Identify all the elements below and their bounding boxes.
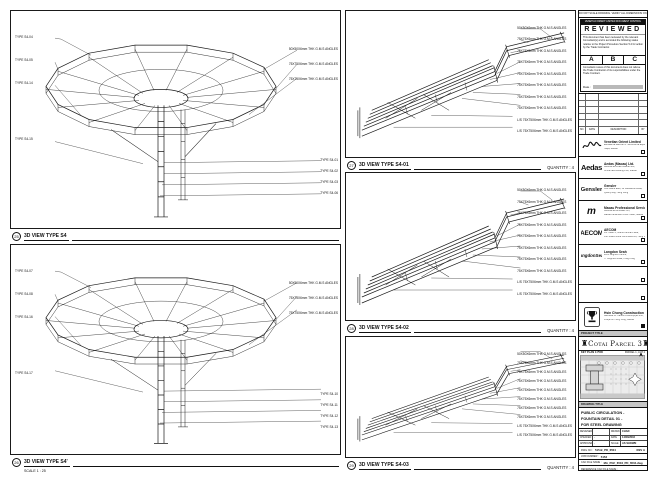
view-panel-s4-01: 50X50X6mm THK G.M.S ANGLES75X75X6mm THK …: [345, 10, 576, 158]
member-labels: 50X50X6mm THK G.M.S ANGLES75X75X6mm THK …: [517, 188, 572, 296]
scale-label: SCALE: [610, 440, 621, 446]
member-size-label: 75X75X6mm THK G.M.S ANGLES: [517, 49, 566, 53]
member-labels-right: 50X50X6mm THK G.M.S ANGLES75X75X6mm THK …: [289, 47, 338, 81]
quantity-label: QUANTITY : 4: [544, 165, 574, 170]
contractor-trophy-logo: [581, 307, 602, 327]
type-label: TYPE S4-10: [320, 392, 338, 396]
member-size-label: 75X75X6mm THK G.M.S ANGLES: [517, 72, 566, 76]
member-size-label: 75X75X6mm THK G.M.S ANGLES: [517, 83, 566, 87]
mps-logo: m: [581, 207, 602, 217]
member-size-label: L/S 75X75X6mm THK G.M.S ANGLES: [517, 280, 572, 284]
langdon-seah-logo: LangdonSeah: [581, 253, 602, 258]
company-address: China Law Building 21/F, Macau: [604, 170, 645, 173]
project-title: Cotai Parcel 3: [588, 340, 642, 348]
key-plan: KEY PLAN 1:7500 PARCEL 1, LOT 2: [579, 351, 647, 402]
company-row-venetian: Venetian Orient Limited Estrada da Baía …: [579, 135, 647, 157]
member-size-label: 75X75X6mm THK G.M.S ANGLES: [517, 406, 566, 410]
member-labels-left: TYPE S4-07TYPE S4-08TYPE S4-16TYPE S4-17: [15, 269, 33, 375]
member-size-label: 75X75X6mm THK G.M.S ANGLES: [517, 269, 566, 273]
company-row-mps: m Macau Professional Services Ltd. Aveni…: [579, 201, 647, 223]
member-size-label: L/S 75X75X6mm THK G.M.S ANGLES: [517, 118, 572, 122]
gensler-logo: Gensler: [581, 187, 602, 193]
member-labels: 50X50X6mm THK G.M.S ANGLES75X75X6mm THK …: [517, 352, 572, 437]
type-label: TYPE S4-17: [15, 371, 33, 375]
panel-title-row: 27 3D VIEW TYPE S4-01 QUANTITY : 4: [347, 159, 574, 170]
status-options: ABC: [581, 55, 645, 65]
member-size-label: 75X75X6mm THK G.M.S ANGLES: [289, 296, 338, 300]
aedas-logo: Aedas: [581, 163, 602, 172]
member-labels-left: TYPE S4-04TYPE S4-05TYPE S4-14TYPE S4-15: [15, 35, 33, 141]
type-label: TYPE S4-14: [15, 81, 33, 85]
scale-note: SCALE 1 : 25: [24, 469, 46, 473]
cad-file-value: MA_PGF_6504_PD_6504.dwg: [604, 461, 643, 465]
scale-value: AS SHOWN: [621, 440, 647, 446]
title-rule: [73, 466, 339, 467]
company-address: Macau Landmark Office Tower, Macau: [604, 214, 645, 217]
type-label: TYPE S4-07: [15, 269, 33, 273]
member-size-label: 75X75X6mm THK G.M.S ANGLES: [517, 234, 566, 238]
type-label: TYPE S4-08: [15, 292, 33, 296]
view-title: 3D VIEW TYPE S4-02: [359, 325, 411, 333]
type-label: TYPE S4-11: [320, 403, 337, 407]
member-size-label: 50X50X6mm THK G.M.S ANGLES: [517, 352, 566, 356]
revision-value: REV A: [637, 448, 645, 452]
status-option: B: [602, 56, 624, 64]
member-size-label: 75X75X6mm THK G.M.S ANGLES: [517, 200, 566, 204]
drawing-title: PUBLIC CIRCULATION -FOUNTAIN DETAIL 01 -…: [579, 408, 647, 429]
type-label: TYPE S4-06: [320, 191, 338, 195]
member-size-label: 75X75X6mm THK G.M.S ANGLES: [517, 211, 566, 215]
rev-col-by: BY: [639, 127, 647, 134]
type-label: TYPE S4-12: [320, 414, 338, 418]
member-size-label: L/S 75X75X6mm THK G.M.S ANGLES: [517, 424, 572, 428]
company-row-gensler: Gensler Gensler One Island East, 18 West…: [579, 179, 647, 201]
view-title: 3D VIEW TYPE S4: [24, 233, 69, 241]
radial-structure-drawing: [11, 11, 340, 228]
job-number-label: JOB NUMBER :: [581, 455, 599, 458]
title-rule: [414, 332, 541, 333]
cad-file-label: CAD FILE NAME :: [581, 461, 602, 464]
date-fill-line: [593, 85, 643, 89]
member-size-label: 75X75X6mm THK G.M.S ANGLES: [289, 311, 338, 315]
review-checkbox-checked: [641, 324, 645, 328]
view-panel-s4-03: 50X50X6mm THK G.M.S ANGLES75X75X6mm THK …: [345, 336, 576, 458]
view-title: 3D VIEW TYPE S4-01: [359, 162, 411, 170]
approved-value: -: [593, 440, 610, 446]
member-size-label: 75X75X6mm THK G.M.S ANGLES: [517, 223, 566, 227]
key-plan-label: KEY PLAN 1:7500: [581, 351, 603, 354]
banner-finial-icon: ♜: [642, 340, 647, 348]
member-size-label: L/S 75X75X6mm THK G.M.S ANGLES: [517, 433, 572, 437]
type-label: TYPE S4-15: [15, 137, 33, 141]
member-size-label: 50X50X6mm THK G.M.S ANGLES: [517, 26, 566, 30]
view-panel-s4-02: 50X50X6mm THK G.M.S ANGLES75X75X6mm THK …: [345, 172, 576, 321]
view-panel-type-s4-prime: TYPE S4-07TYPE S4-08TYPE S4-16TYPE S4-17…: [10, 244, 341, 455]
member-size-label: 75X75X6mm THK G.M.S ANGLES: [517, 257, 566, 261]
drawing-title-label: DRAWING TITLE: [579, 402, 647, 407]
member-labels-right: 50X50X6mm THK G.M.S ANGLES75X75X6mm THK …: [289, 281, 338, 315]
stamp-paragraph-2: Consultant review of this document does …: [581, 65, 645, 85]
stamp-paragraph-1: This document has been reviewed by the r…: [581, 35, 645, 55]
disclaimer-bar: DO NOT SCALE DRAWING. VERIFY ALL DIMENSI…: [579, 11, 647, 18]
job-number-value: 5153: [601, 455, 607, 459]
company-row-langdon-seah: LangdonSeah Langdon Seah 2101 Leighton C…: [579, 245, 647, 267]
review-checkbox: [641, 260, 645, 264]
revision-table: NO. DATE DESCRIPTION BY: [579, 94, 647, 135]
rev-col-description: DESCRIPTION: [599, 127, 639, 134]
drawing-title-line: FOR STEEL DRAWING: [581, 422, 645, 428]
detail-number-badge: 26: [12, 458, 21, 467]
review-checkbox: [641, 194, 645, 198]
banner-finial-icon: ♜: [581, 340, 588, 348]
type-label: TYPE S4-13: [320, 425, 338, 429]
title-rule: [414, 169, 541, 170]
detail-number-badge: 27: [347, 161, 356, 170]
member-size-label: 75X75X6mm THK G.M.S ANGLES: [517, 379, 566, 383]
contractor-row: Hsin Chong Construction (Macau) Co. Ltd.…: [579, 303, 647, 331]
type-label: TYPE S4-02: [320, 169, 338, 173]
type-label: TYPE S4-03: [320, 180, 338, 184]
member-size-label: 75X75X6mm THK G.M.S ANGLES: [289, 62, 338, 66]
project-title-banner: ♜ Cotai Parcel 3 ♜: [579, 337, 647, 351]
dwg-no-label: DWG NO :: [581, 449, 593, 452]
rev-col-no: NO.: [579, 127, 586, 134]
radial-structure-drawing: [11, 245, 340, 454]
member-size-label: 75X75X6mm THK G.M.S ANGLES: [517, 60, 566, 64]
panel-title-row: 28 3D VIEW TYPE S4-02 QUANTITY : 4: [347, 322, 574, 333]
contractor-address: Praça Kin Heng Long, Macau: [604, 319, 645, 322]
dwg-no-value: 515-B_PD_6504: [595, 448, 616, 452]
member-size-label: 75X75X6mm THK G.M.S ANGLES: [517, 397, 566, 401]
venetian-signature-logo: [581, 140, 602, 152]
member-size-label: 75X75X6mm THK G.M.S ANGLES: [517, 361, 566, 365]
rev-col-date: DATE: [586, 127, 599, 134]
review-checkbox: [641, 216, 645, 220]
company-address: 138 Shatin Rural Committee Rd, Hong Kong: [604, 236, 645, 239]
review-checkbox: [641, 296, 645, 300]
title-block-strip: DO NOT SCALE DRAWING. VERIFY ALL DIMENSI…: [578, 10, 648, 471]
aecom-logo: AECOM: [581, 230, 602, 237]
panel-title-row: 29 3D VIEW TYPE S4-03 QUANTITY : 4: [347, 459, 574, 470]
member-size-label: 75X75X6mm THK G.M.S ANGLES: [517, 95, 566, 99]
status-option: A: [581, 56, 602, 64]
review-stamp-section: VENETIAN ORIENT LIMITED DOCUMENT CONTROL…: [579, 18, 647, 94]
member-size-label: L/S 75X75X6mm THK G.M.S ANGLES: [517, 129, 572, 133]
review-checkbox: [641, 238, 645, 242]
company-address: Taipa, Macau: [604, 148, 645, 151]
company-address: 77 Leighton Road, Hong Kong: [604, 258, 645, 261]
view-title: 3D VIEW TYPE S4': [24, 459, 70, 467]
review-checkbox: [641, 278, 645, 282]
type-label: TYPE S4-16: [15, 315, 33, 319]
fields-table: DESIGNED DRAWN CHAD CHECKED - DATE 14/03…: [579, 429, 647, 447]
member-size-label: 75X75X6mm THK G.M.S ANGLES: [517, 106, 566, 110]
disclaimer-text: DO NOT SCALE DRAWING. VERIFY ALL DIMENSI…: [579, 11, 647, 17]
member-size-label: 50X50X6mm THK G.M.S ANGLES: [517, 188, 566, 192]
review-stamp: VENETIAN ORIENT LIMITED DOCUMENT CONTROL…: [580, 19, 646, 92]
review-checkbox: [641, 172, 645, 176]
review-checkbox: [641, 150, 645, 154]
date-label: Date :: [583, 85, 591, 89]
title-rule: [72, 240, 339, 241]
member-size-label: 75X75X6mm THK G.M.S ANGLES: [517, 246, 566, 250]
quantity-label: QUANTITY : 4: [544, 328, 574, 333]
quantity-label: QUANTITY : 4: [544, 465, 574, 470]
member-size-label: 50X50X6mm THK G.M.S ANGLES: [289, 47, 338, 51]
detail-number-badge: 29: [347, 461, 356, 470]
member-size-label: 75X75X6mm THK G.M.S ANGLES: [517, 388, 566, 392]
type-label: TYPE S4-05: [15, 58, 33, 62]
type-labels-right: TYPE S4-01TYPE S4-02TYPE S4-03TYPE S4-06: [320, 158, 338, 195]
member-size-label: 75X75X6mm THK G.M.S ANGLES: [517, 415, 566, 419]
approved-label: APPROVED: [579, 440, 593, 446]
dwg-no-row: DWG NO : 515-B_PD_6504 REV A: [579, 447, 647, 454]
view-title: 3D VIEW TYPE S4-03: [359, 462, 411, 470]
company-row-aedas: Aedas Aedas (Macau) Ltd. Avenida da Prai…: [579, 157, 647, 179]
title-rule: [414, 469, 541, 470]
empty-consultant-row: [579, 285, 647, 303]
key-plan-parcel-label: PARCEL 1, LOT 2: [625, 351, 645, 354]
empty-consultant-row: [579, 267, 647, 285]
project-title-label: PROJECT TITLE: [579, 331, 647, 336]
detail-number-badge: 28: [347, 324, 356, 333]
member-labels: 50X50X6mm THK G.M.S ANGLES75X75X6mm THK …: [517, 26, 572, 133]
member-size-label: 75X75X6mm THK G.M.S ANGLES: [517, 37, 566, 41]
view-panel-type-s4: TYPE S4-04TYPE S4-05TYPE S4-14TYPE S4-15…: [10, 10, 341, 229]
panel-title-row: 25 3D VIEW TYPE S4: [12, 230, 339, 241]
type-labels-right: TYPE S4-10TYPE S4-11TYPE S4-12TYPE S4-13: [320, 392, 338, 429]
member-size-label: 50X50X6mm THK G.M.S ANGLES: [289, 281, 338, 285]
stamp-title: REVIEWED: [581, 25, 645, 35]
member-size-label: 75X75X6mm THK G.M.S ANGLES: [517, 370, 566, 374]
member-size-label: L/S 75X75X6mm THK G.M.S ANGLES: [517, 292, 572, 296]
status-option: C: [623, 56, 645, 64]
panel-title-row: 26 3D VIEW TYPE S4': [12, 456, 339, 467]
type-label: TYPE S4-01: [320, 158, 338, 162]
drawing-sheet: TYPE S4-04TYPE S4-05TYPE S4-14TYPE S4-15…: [0, 0, 650, 488]
company-address: Quarry Bay, Hong Kong: [604, 192, 645, 195]
stamp-date-row: Date :: [581, 84, 645, 91]
company-row-aecom: AECOM AECOM 8/F Tower 2, Grand Central P…: [579, 223, 647, 245]
key-plan-map: [579, 351, 647, 401]
type-label: TYPE S4-04: [15, 35, 33, 39]
ref-cad-file-label: REFERENCE CAD FILE NAME :: [581, 468, 618, 471]
detail-number-badge: 25: [12, 232, 21, 241]
member-size-label: 75X75X6mm THK G.M.S ANGLES: [289, 77, 338, 81]
ref-cad-file-row: REFERENCE CAD FILE NAME :: [579, 466, 647, 472]
